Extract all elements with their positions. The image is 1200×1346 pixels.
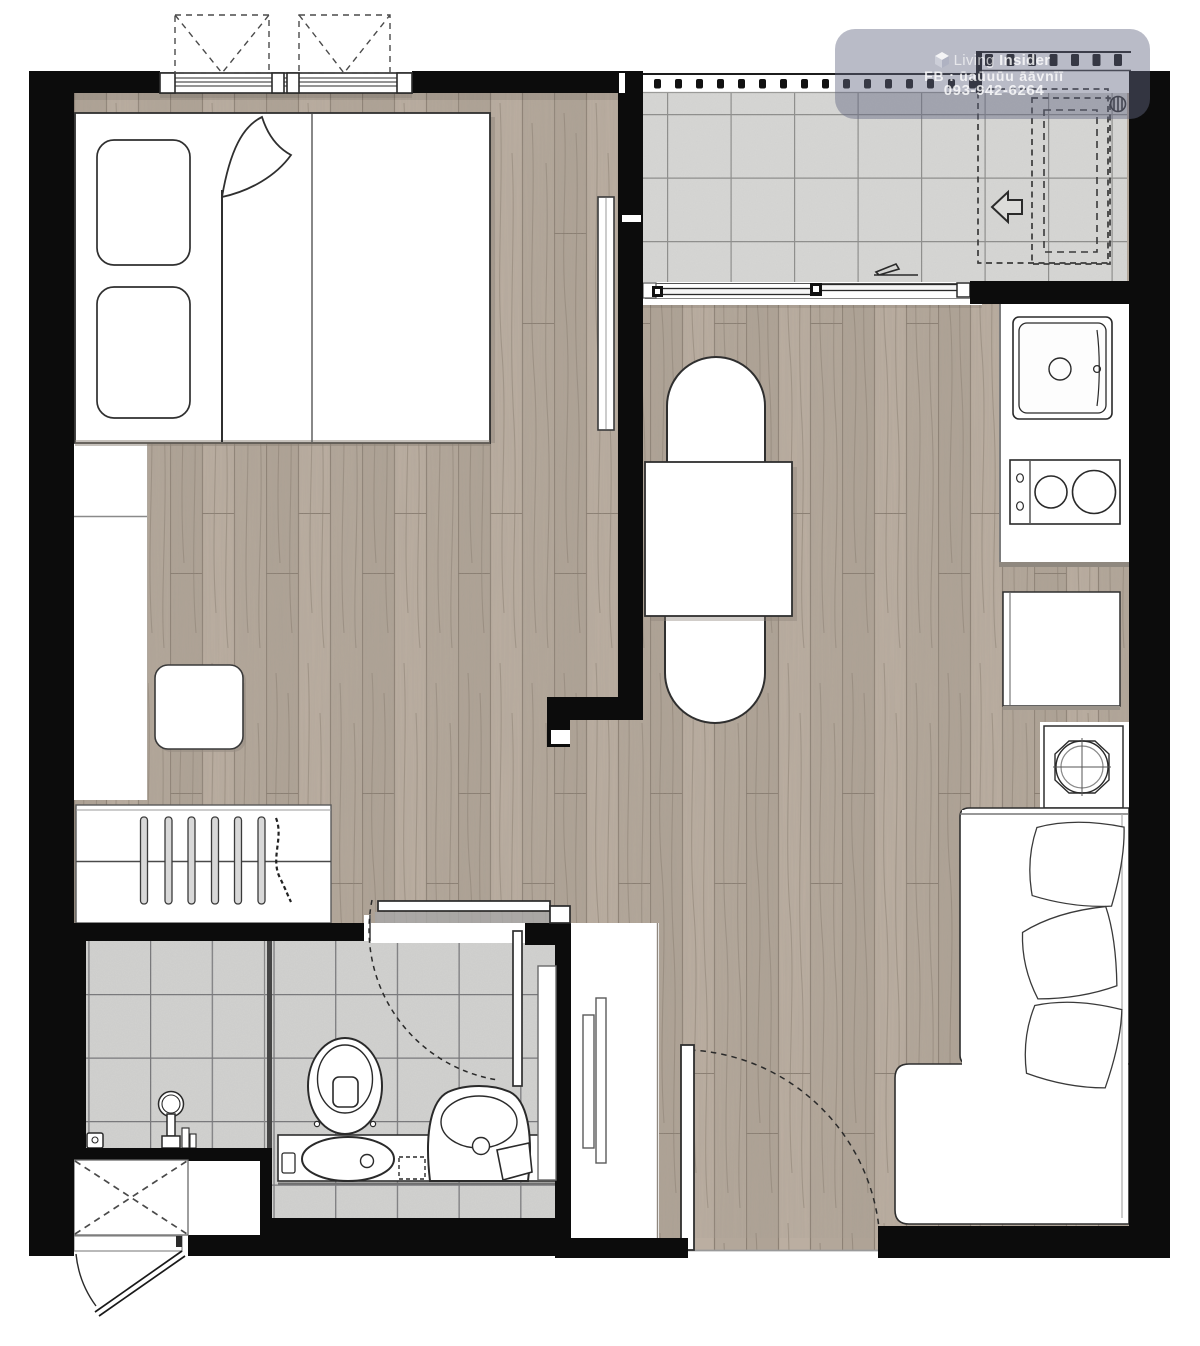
svg-text:Living Insider: Living Insider	[954, 52, 1051, 69]
svg-text:093-942-6264: 093-942-6264	[944, 82, 1045, 99]
